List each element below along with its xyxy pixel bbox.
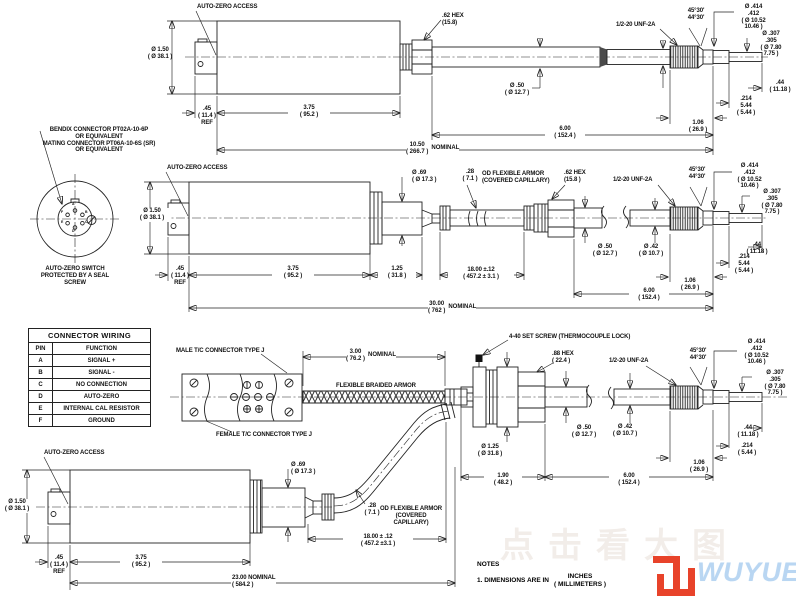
bendix-connector-note: BENDIX CONNECTOR PT02A-10-6P OR EQUIVALE…	[36, 127, 162, 154]
thread-section	[670, 46, 698, 68]
dim-dia-50: Ø .50 ( Ø 12.7 )	[500, 83, 534, 97]
dim-total: 23.00 NOMINAL ( 584.2 )	[231, 575, 276, 589]
function-cell: SIGNAL -	[53, 367, 151, 379]
dim-probe-len: 6.00 ( 152.4 )	[545, 126, 585, 140]
connector-wiring-table: CONNECTOR WIRING PIN FUNCTION ASIGNAL + …	[28, 328, 151, 427]
dim-total: 30.00 ( 762 ) NOMINAL	[428, 301, 476, 315]
male-tc-label: MALE T/C CONNECTOR TYPE J	[176, 348, 264, 355]
braided-armor-label: FLEXIBLE BRAIDED ARMOR	[336, 383, 416, 390]
table-row: ASIGNAL +	[29, 355, 151, 367]
dim-tip-major: Ø .414 .412 ( Ø 10.52 10.46 )	[738, 339, 775, 366]
table-header-pin: PIN	[29, 343, 53, 355]
table-row: BSIGNAL -	[29, 367, 151, 379]
brand-logo: WUYUE	[645, 548, 795, 603]
dim-thread-len: 1.06 ( 26.9 )	[676, 278, 704, 292]
pin-letter: B	[85, 211, 88, 215]
dim-ref: .45 ( 11.4 ) REF	[164, 266, 196, 286]
set-screw-icon	[476, 355, 483, 363]
dim-hex: .62 HEX (15.8)	[442, 13, 464, 27]
function-cell: INTERNAL CAL RESISTOR	[53, 403, 151, 415]
dim-body-len: 3.75 ( 95.2 )	[288, 105, 330, 119]
dim-flange-dia: Ø 1.25 ( Ø 31.8 )	[470, 444, 510, 458]
dim-probe-len: 6.00 ( 152.4 )	[609, 473, 649, 487]
pin-cell: C	[29, 379, 53, 391]
armor-label: OD FLEXIBLE ARMOR (COVERED CAPILLARY)	[379, 506, 443, 526]
armor-label: OD FLEXIBLE ARMOR (COVERED CAPILLARY)	[482, 171, 550, 185]
table-header-function: FUNCTION	[53, 343, 151, 355]
dim-adapter-dia: Ø .69 ( Ø 17.3 )	[291, 462, 315, 476]
dim-braid-suffix: NOMINAL	[368, 352, 396, 359]
dim-ref: .45 ( 11.4 ) REF	[191, 106, 223, 126]
dim-total: 10.50 ( 266.7 ) NOMINAL	[406, 142, 459, 156]
set-screw-label: 4-40 SET SCREW (THERMOCOUPLE LOCK)	[509, 334, 630, 341]
pin-cell: D	[29, 391, 53, 403]
dim-angle: 45°30' 44°30'	[683, 167, 711, 181]
dim-dia-50: Ø .50 ( Ø 12.7 )	[588, 244, 622, 258]
dim-214: .214 5.44 ( 5.44 )	[732, 96, 760, 116]
bent-armor	[334, 404, 447, 498]
braided-armor	[303, 391, 445, 403]
thread-section	[670, 386, 698, 409]
notes-units: INCHES( MILLIMETERS )	[554, 573, 606, 588]
pin-letter: E	[61, 221, 63, 225]
pin-letter: C	[85, 221, 88, 225]
seal-screw-icon	[51, 512, 56, 517]
dim-190: 1.90 ( 48.2 )	[484, 473, 522, 487]
dim-tip-minor: Ø .307 .305 ( Ø 7.80 7.75 )	[750, 189, 794, 216]
logo-mark-icon	[688, 568, 695, 596]
dim-body-len: 3.75 ( 95.2 )	[120, 555, 162, 569]
pin-letter: D	[72, 230, 75, 234]
auto-zero-access-label: AUTO-ZERO ACCESS	[44, 450, 104, 457]
function-cell: AUTO-ZERO	[53, 391, 151, 403]
hex-nut	[548, 200, 574, 237]
auto-zero-access-label: AUTO-ZERO ACCESS	[167, 165, 227, 172]
dim-thread: 1/2-20 UNF-2A	[616, 22, 655, 29]
table-row: EINTERNAL CAL RESISTOR	[29, 403, 151, 415]
dim-armor-len: 18.00 ±.12 ( 457.2 ± 3.1 )	[448, 267, 514, 281]
dim-thread: 1/2-20 UNF-2A	[613, 177, 652, 184]
dim-thread-len: 1.06 ( 26.9 )	[684, 460, 714, 474]
dim-total-value: 30.00 ( 762 )	[428, 301, 445, 315]
view-top-rigid-probe	[167, 11, 768, 155]
dim-thread-len: 1.06 ( 26.9 )	[684, 120, 712, 134]
dim-body-dia: Ø 1.50 ( Ø 38.1 )	[145, 47, 175, 61]
dim-ref: .45 ( 11.4 ) REF	[43, 555, 75, 575]
notes-text: 1. DIMENSIONS ARE IN	[477, 577, 549, 584]
pin-letter: A	[72, 203, 75, 207]
function-cell: GROUND	[53, 415, 151, 427]
table-row: CNO CONNECTION	[29, 379, 151, 391]
function-cell: NO CONNECTION	[53, 379, 151, 391]
view-middle-flex-armor	[144, 172, 768, 312]
dim-dia-50: Ø .50 ( Ø 12.7 )	[566, 425, 602, 439]
dim-tip-len: .44 ( 11.18 )	[733, 425, 763, 439]
dim-adapter-len: 1.25 ( 31.8 )	[378, 266, 416, 280]
dim-total-suffix: NOMINAL	[448, 304, 476, 311]
dim-total-suffix: NOMINAL	[431, 145, 459, 152]
view-bottom-bent-armor	[20, 402, 455, 590]
dim-tip-minor: Ø .307 .305 ( Ø 7.80 7.75 )	[749, 31, 793, 58]
dim-tip-len: .44 ( 11.18 )	[765, 80, 795, 94]
dim-tip-major: Ø .414 .412 ( Ø 10.52 10.46 )	[735, 4, 772, 31]
dim-angle: 45°30' 44°30'	[682, 8, 710, 22]
dim-hex: .88 HEX ( 22.4 )	[552, 351, 574, 365]
dim-adapter-dia: Ø .69 ( Ø 17.3 )	[412, 170, 436, 184]
dim-angle: 45°30' 44°30'	[684, 348, 712, 362]
dim-body-dia: Ø 1.50 ( Ø 38.1 )	[134, 208, 170, 222]
thread-section	[670, 207, 698, 230]
notes-title: NOTES	[477, 561, 499, 568]
dim-armor-len: 18.00 ± .12 ( 457.2 ±3.1 )	[343, 534, 413, 548]
dim-braid-value: 3.00 ( 76.2 )	[346, 349, 365, 363]
auto-zero-switch-caption: AUTO-ZERO SWITCH PROTECTED BY A SEAL SCR…	[30, 266, 120, 286]
dim-tip-major: Ø .414 .412 ( Ø 10.52 10.46 )	[731, 163, 768, 190]
dim-dia-42: Ø .42 ( Ø 10.7 )	[607, 424, 643, 438]
dim-body-dia: Ø 1.50 ( Ø 38.1 )	[0, 499, 34, 513]
dim-thread: 1/2-20 UNF-2A	[609, 358, 648, 365]
table-title: CONNECTOR WIRING	[29, 329, 151, 343]
pin-cell: B	[29, 367, 53, 379]
dim-dia-42: Ø .42 ( Ø 10.7 )	[634, 244, 668, 258]
function-cell: SIGNAL +	[53, 355, 151, 367]
dim-tip-minor: Ø .307 .305 ( Ø 7.80 7.75 )	[753, 370, 796, 397]
table-row: DAUTO-ZERO	[29, 391, 151, 403]
dim-probe-len: 6.00 ( 152.4 )	[629, 288, 669, 302]
seal-screw-icon	[198, 62, 203, 67]
pin-cell: E	[29, 403, 53, 415]
pin-cell: A	[29, 355, 53, 367]
dim-hex: .62 HEX (15.8 )	[564, 170, 586, 184]
brand-name: WUYUE	[697, 558, 796, 586]
pin-letter: F	[61, 211, 63, 215]
notes-line: 1. DIMENSIONS ARE IN INCHES( MILLIMETERS…	[477, 573, 606, 588]
table-row: FGROUND	[29, 415, 151, 427]
dim-braid-len: 3.00 ( 76.2 ) NOMINAL	[346, 349, 396, 363]
engineering-drawing-canvas: BENDIX CONNECTOR PT02A-10-6P OR EQUIVALE…	[0, 0, 796, 609]
female-tc-label: FEMALE T/C CONNECTOR TYPE J	[216, 432, 312, 439]
dim-214: .214 5.44 ( 5.44 )	[730, 254, 758, 274]
auto-zero-access-label: AUTO-ZERO ACCESS	[197, 4, 257, 11]
dim-armor-od: .28 ( 7.1 )	[458, 169, 482, 183]
seal-screw-icon	[171, 224, 176, 229]
dim-214: .214 ( 5.44 )	[731, 443, 763, 457]
dim-total-value: 10.50 ( 266.7 )	[406, 142, 428, 156]
pin-cell: F	[29, 415, 53, 427]
dim-body-len: 3.75 ( 95.2 )	[272, 266, 314, 280]
